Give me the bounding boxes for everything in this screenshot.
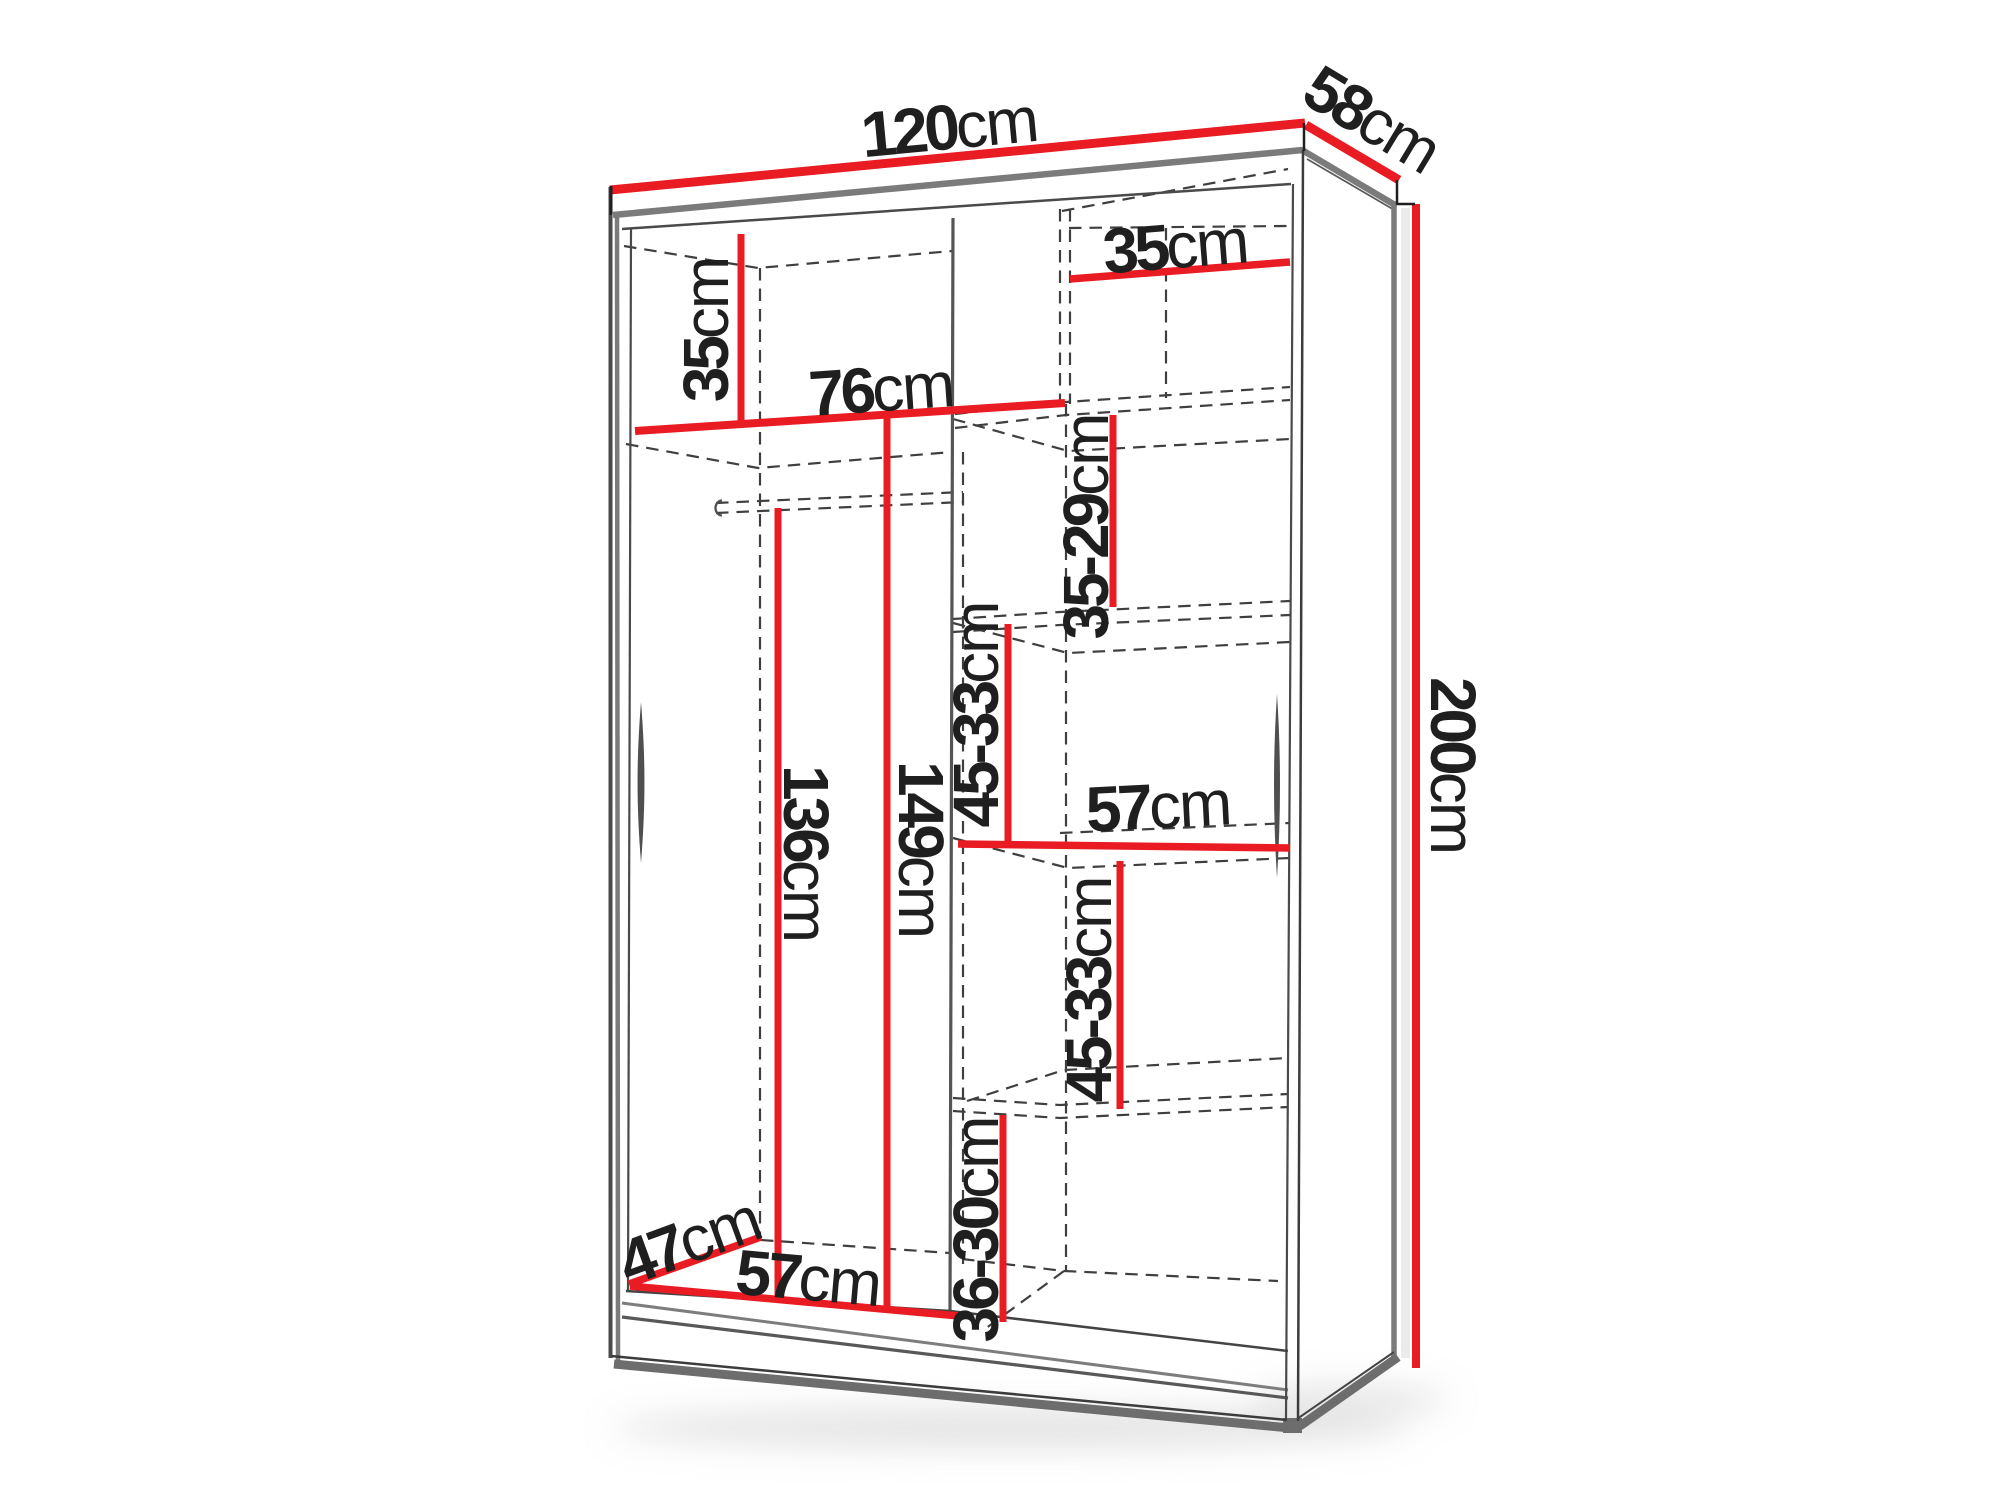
- svg-text:35cm: 35cm: [1100, 204, 1250, 287]
- svg-text:35cm: 35cm: [670, 258, 742, 403]
- svg-text:57cm: 57cm: [1084, 766, 1232, 845]
- svg-text:76cm: 76cm: [806, 348, 955, 430]
- svg-text:57cm: 57cm: [733, 1236, 883, 1320]
- svg-text:45-33cm: 45-33cm: [1053, 878, 1125, 1103]
- svg-text:136cm: 136cm: [770, 765, 842, 941]
- svg-text:149cm: 149cm: [885, 761, 957, 937]
- svg-text:35-29cm: 35-29cm: [1050, 415, 1122, 640]
- svg-text:200cm: 200cm: [1417, 677, 1489, 853]
- svg-text:36-30cm: 36-30cm: [940, 1118, 1012, 1343]
